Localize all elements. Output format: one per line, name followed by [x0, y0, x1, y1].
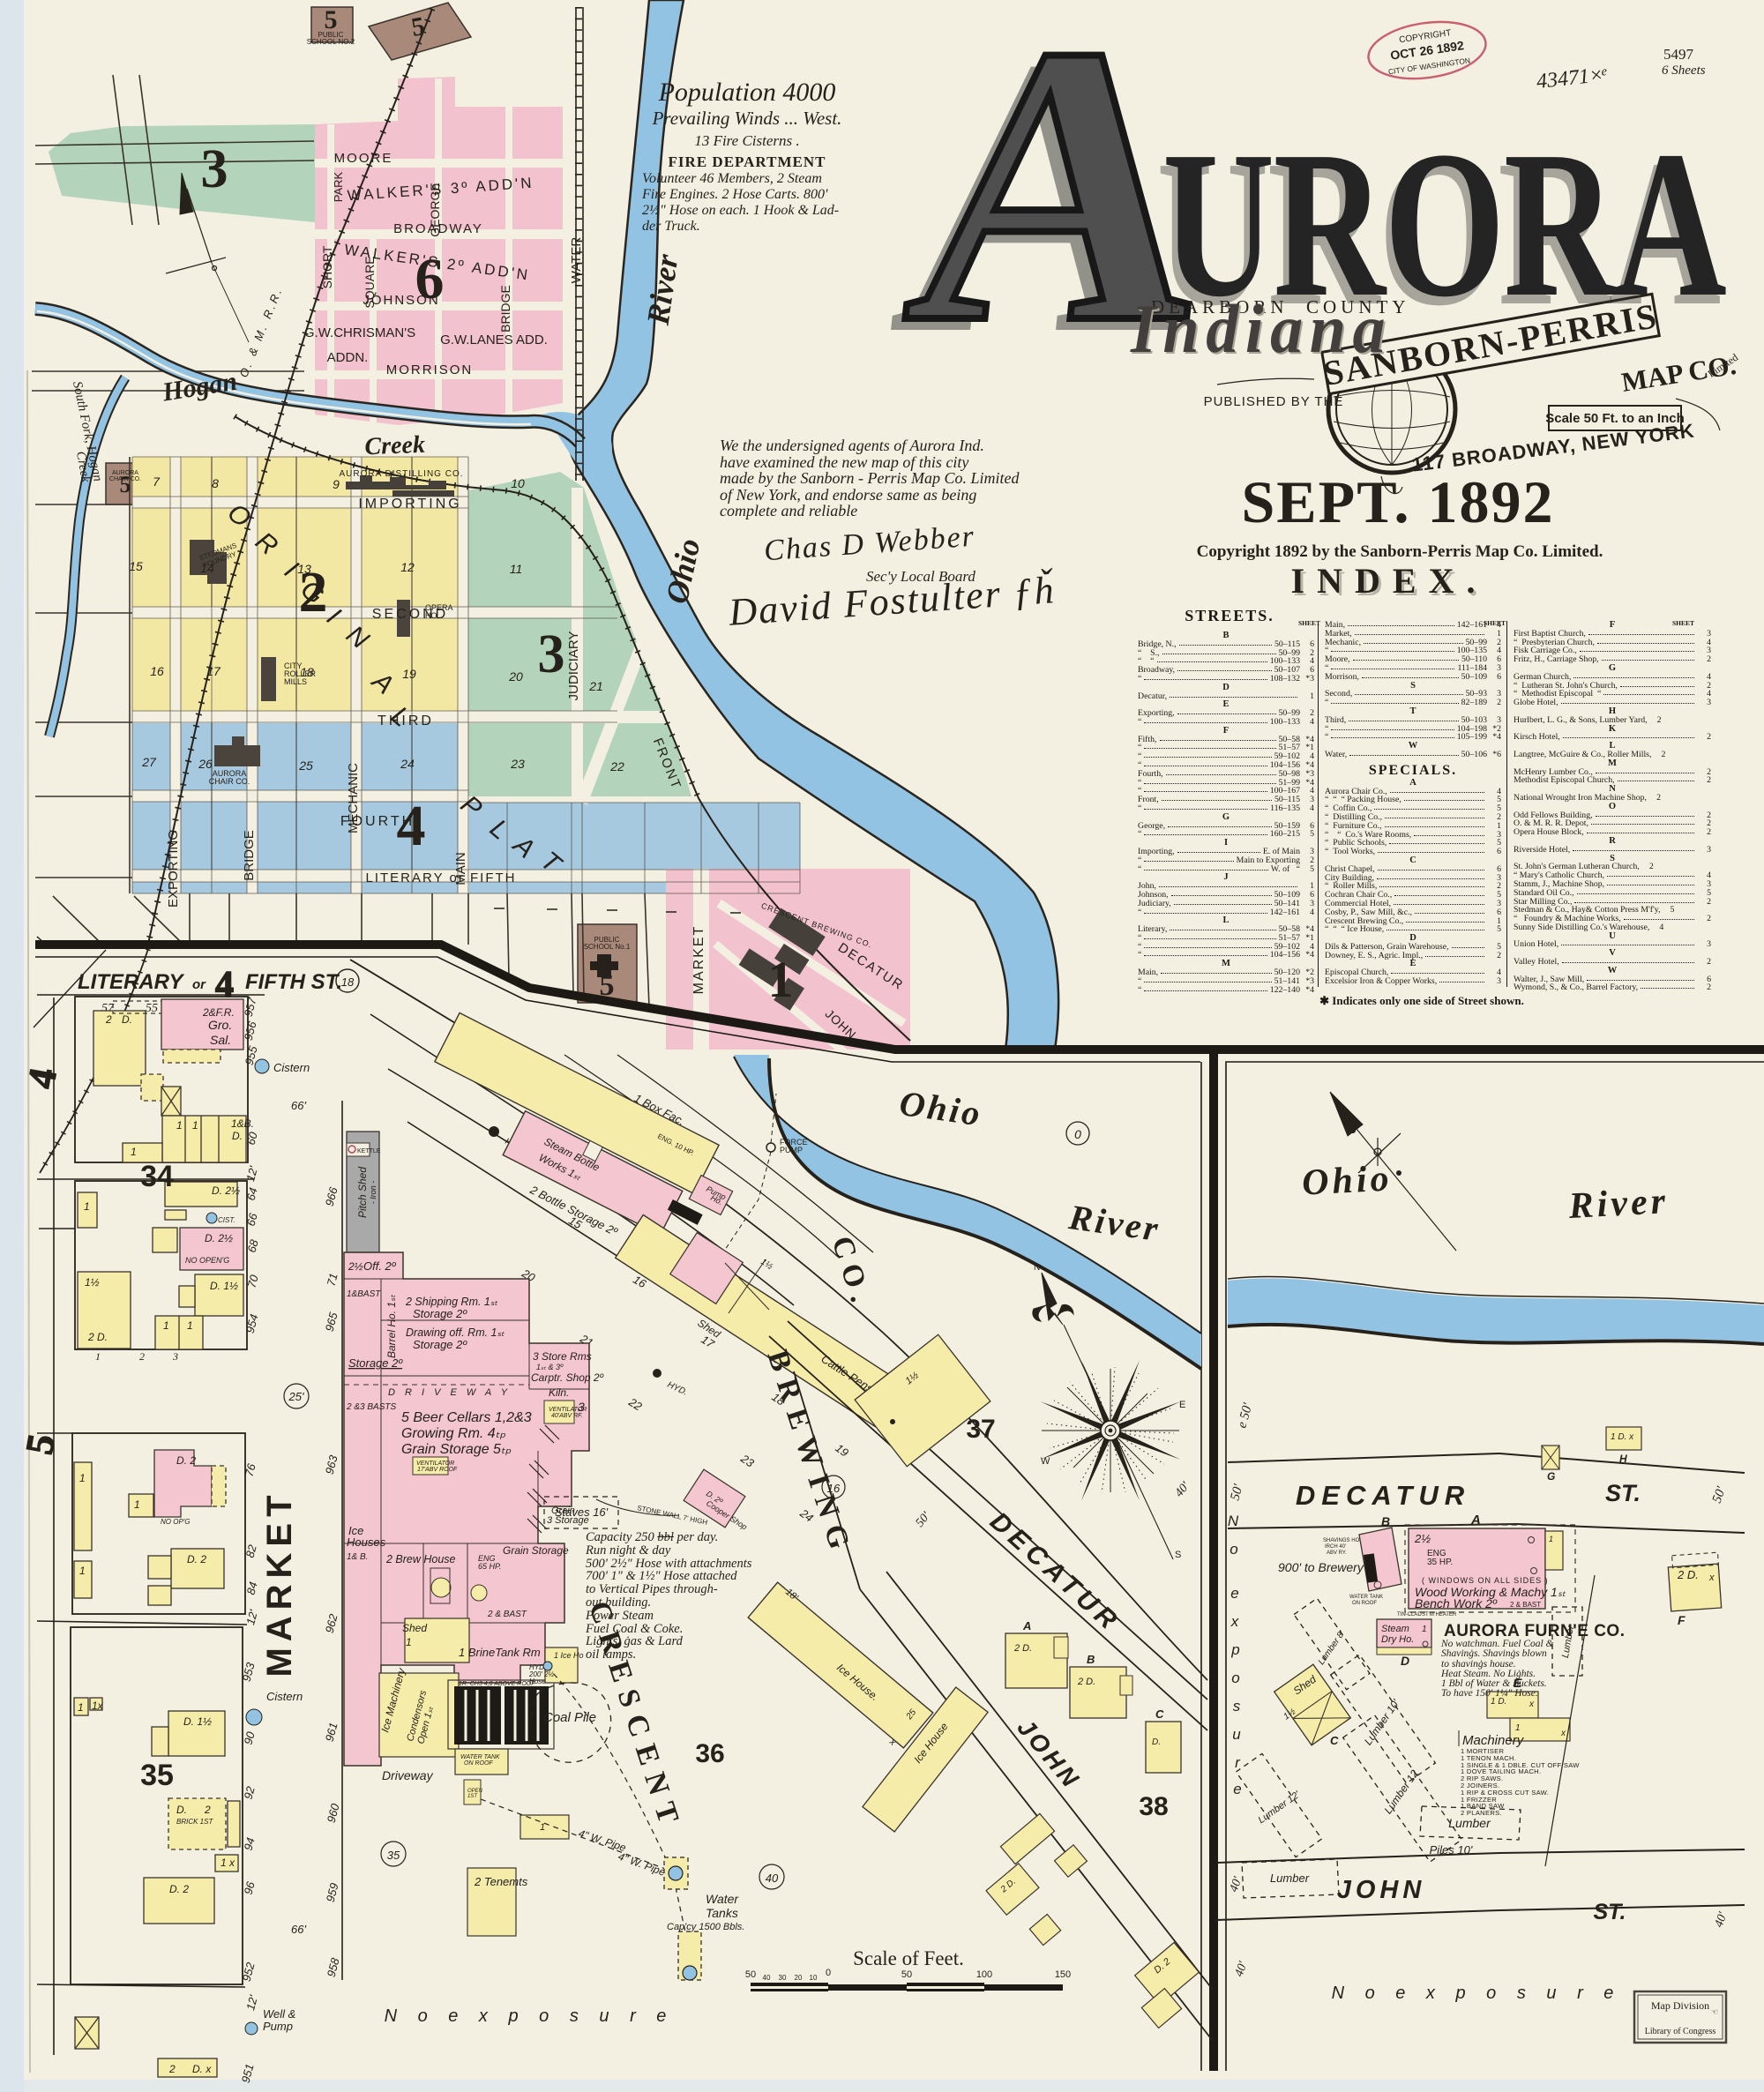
- svg-text:Houses: Houses: [347, 1535, 386, 1549]
- svg-text:150: 150: [1055, 1969, 1071, 1980]
- svg-text:Pitch Shed: Pitch Shed: [356, 1167, 369, 1218]
- svg-text:NO OPEN'G: NO OPEN'G: [185, 1256, 229, 1265]
- svg-text:or: or: [192, 977, 206, 992]
- svg-text:0: 0: [1074, 1127, 1081, 1141]
- svg-text:66': 66': [291, 1099, 306, 1112]
- svg-text:River: River: [1567, 1181, 1671, 1227]
- svg-text:TIN-CLAD: TIN-CLAD: [1397, 1612, 1422, 1618]
- svg-text:KETTLE: KETTLE: [357, 1148, 381, 1154]
- svg-text:2: 2: [204, 1804, 211, 1816]
- svg-text:D. 1½: D. 1½: [183, 1715, 212, 1728]
- svg-text:Gro.: Gro.: [208, 1018, 232, 1032]
- svg-text:SQUARE: SQUARE: [363, 256, 377, 308]
- svg-text:50: 50: [901, 1969, 912, 1980]
- svg-text:ST'M HEATER: ST'M HEATER: [1422, 1612, 1457, 1618]
- svg-text:Library of Congress: Library of Congress: [1645, 2027, 1716, 2036]
- svg-text:15: 15: [129, 559, 143, 573]
- svg-text:16: 16: [150, 664, 164, 678]
- svg-text:1: 1: [406, 1636, 412, 1648]
- svg-text:VENTILATOR: VENTILATOR: [549, 1407, 587, 1413]
- svg-text:1: 1: [1422, 1625, 1427, 1634]
- svg-text:G.W.CHRISMAN'S: G.W.CHRISMAN'S: [304, 325, 415, 340]
- svg-text:x: x: [1230, 1613, 1239, 1630]
- svg-text:35: 35: [387, 1849, 400, 1862]
- svg-text:GEORGE: GEORGE: [428, 183, 442, 236]
- svg-text:H: H: [1619, 1453, 1627, 1465]
- svg-text:CHAIR CO.: CHAIR CO.: [209, 777, 250, 786]
- svg-text:19: 19: [402, 667, 416, 681]
- svg-text:A: A: [1470, 1513, 1481, 1528]
- svg-text:MOORE: MOORE: [334, 151, 393, 166]
- svg-text:Map Division: Map Division: [1651, 1999, 1709, 2012]
- svg-text:o: o: [1231, 1670, 1239, 1686]
- svg-text:18: 18: [341, 975, 355, 989]
- svg-text:MECHANIC: MECHANIC: [346, 763, 361, 833]
- svg-text:D. 2: D. 2: [176, 1454, 196, 1467]
- svg-text:34: 34: [140, 1160, 174, 1193]
- svg-text:2 D.: 2 D.: [87, 1331, 108, 1343]
- svg-text:8: 8: [212, 476, 219, 490]
- svg-text:1: 1: [84, 1200, 90, 1213]
- svg-text:1R. CH3 4,8 ABOVE ROOF: 1R. CH3 4,8 ABOVE ROOF: [459, 1681, 535, 1687]
- svg-text:2 D.: 2 D.: [1013, 1643, 1032, 1654]
- svg-text:27: 27: [141, 755, 157, 769]
- svg-text:1: 1: [79, 1472, 86, 1484]
- svg-text:5 Beer Cellars 1,2&3: 5 Beer Cellars 1,2&3: [401, 1410, 532, 1425]
- svg-text:IMPORTING: IMPORTING: [358, 497, 461, 512]
- svg-text:2 D.: 2 D.: [1677, 1568, 1699, 1581]
- svg-text:3: 3: [538, 624, 565, 684]
- svg-text:Ohio: Ohio: [1301, 1158, 1394, 1203]
- svg-text:37: 37: [966, 1415, 995, 1444]
- svg-text:35: 35: [140, 1759, 174, 1792]
- svg-text:VENTILATOR: VENTILATOR: [416, 1461, 454, 1467]
- svg-text:40: 40: [763, 1974, 771, 1982]
- svg-text:9: 9: [333, 477, 340, 491]
- svg-text:e: e: [1233, 1781, 1241, 1797]
- svg-text:25: 25: [298, 758, 313, 773]
- svg-text:AURORA DISTILLING CO.: AURORA DISTILLING CO.: [339, 469, 463, 479]
- svg-text:ST.: ST.: [1605, 1480, 1641, 1506]
- svg-text:Dry Ho.: Dry Ho.: [1381, 1634, 1414, 1645]
- svg-text:40: 40: [766, 1872, 779, 1885]
- svg-text:D.: D.: [122, 1013, 132, 1026]
- svg-text:1ST: 1ST: [467, 1794, 478, 1799]
- svg-text:SEPT. 1892: SEPT. 1892: [1241, 468, 1554, 535]
- svg-text:1: 1: [78, 1701, 84, 1714]
- svg-text:BRIDGE: BRIDGE: [498, 285, 512, 332]
- svg-text:W: W: [1041, 1456, 1050, 1467]
- svg-text:900' to Brewery: 900' to Brewery: [1278, 1560, 1364, 1574]
- svg-text:MORRISON: MORRISON: [386, 362, 474, 377]
- svg-text:INDEX.: INDEX.: [1291, 561, 1488, 601]
- svg-text:Cap'cy 1500 Bbls.: Cap'cy 1500 Bbls.: [667, 1922, 744, 1932]
- svg-text:S: S: [1175, 1550, 1181, 1560]
- svg-text:F: F: [1678, 1613, 1686, 1627]
- svg-text:17'ABV ROOF: 17'ABV ROOF: [417, 1467, 458, 1473]
- svg-text:1: 1: [131, 1146, 137, 1158]
- svg-text:Grain Storage: Grain Storage: [503, 1544, 569, 1557]
- svg-text:Water: Water: [706, 1892, 739, 1906]
- svg-text:MARKET: MARKET: [260, 1489, 299, 1677]
- svg-text:EXPORTING: EXPORTING: [166, 830, 181, 908]
- svg-text:10: 10: [511, 476, 525, 490]
- svg-text:PUMP: PUMP: [780, 1146, 803, 1154]
- svg-text:D.: D.: [176, 1804, 187, 1816]
- svg-text:JOHN: JOHN: [1337, 1876, 1426, 1904]
- svg-text:Machinery: Machinery: [1462, 1733, 1525, 1748]
- svg-text:38: 38: [1139, 1792, 1168, 1821]
- svg-text:MILLS: MILLS: [284, 677, 307, 686]
- svg-text:SECOND: SECOND: [372, 607, 448, 622]
- svg-text:A: A: [1022, 1619, 1031, 1633]
- svg-text:3: 3: [201, 139, 228, 199]
- svg-text:o: o: [1230, 1541, 1237, 1558]
- svg-text:2: 2: [105, 1013, 112, 1026]
- svg-text:p: p: [1230, 1641, 1239, 1658]
- svg-text:IRCH 40': IRCH 40': [1325, 1544, 1346, 1550]
- svg-text:D. 2: D. 2: [187, 1553, 206, 1565]
- svg-text:2 &3 BASTS: 2 &3 BASTS: [346, 1402, 396, 1412]
- svg-text:24: 24: [400, 757, 415, 771]
- svg-text:D. 1½: D. 1½: [210, 1280, 238, 1292]
- svg-text:0: 0: [826, 1968, 831, 1978]
- svg-text:BRICK 1ST: BRICK 1ST: [176, 1818, 213, 1826]
- svg-text:PARK: PARK: [332, 171, 345, 202]
- svg-text:Creek: Creek: [364, 431, 425, 460]
- svg-text:D R I V E W A Y: D R I V E W A Y: [388, 1387, 511, 1398]
- svg-text:NO OP'G: NO OP'G: [161, 1518, 191, 1526]
- svg-text:CHAIR CO.: CHAIR CO.: [109, 476, 141, 482]
- svg-text:2 & BAST: 2 & BAST: [1510, 1601, 1541, 1609]
- svg-text:1ₛₜ & 3º: 1ₛₜ & 3º: [536, 1363, 564, 1371]
- svg-text:22: 22: [609, 759, 624, 773]
- svg-text:20: 20: [508, 669, 523, 684]
- svg-text:N: N: [1034, 1263, 1040, 1273]
- svg-text:2 Tenemts: 2 Tenemts: [474, 1875, 528, 1888]
- svg-text:Storage 2º: Storage 2º: [413, 1307, 467, 1320]
- svg-text:AURORA: AURORA: [112, 470, 138, 476]
- svg-text:Copyright 1892 by the Sanborn-: Copyright 1892 by the Sanborn-Perris Map…: [1197, 542, 1603, 561]
- svg-text:D. 2½: D. 2½: [205, 1232, 233, 1244]
- svg-text:x: x: [1560, 1729, 1566, 1738]
- svg-text:ADDN.: ADDN.: [327, 350, 369, 365]
- svg-text:D. 2½: D. 2½: [212, 1184, 240, 1197]
- svg-text:WATER TANK: WATER TANK: [1349, 1595, 1383, 1600]
- svg-text:ON ROOF: ON ROOF: [464, 1760, 493, 1767]
- svg-text:1: 1: [1515, 1723, 1521, 1733]
- svg-text:12: 12: [400, 560, 415, 574]
- svg-text:Cistern: Cistern: [266, 1690, 303, 1703]
- svg-text:1 x: 1 x: [220, 1857, 235, 1869]
- svg-text:3: 3: [172, 1350, 178, 1363]
- svg-text:Staves 16': Staves 16': [555, 1505, 609, 1519]
- svg-text:Pump: Pump: [263, 2020, 293, 2033]
- svg-text:N o e x p o s u r e: N o e x p o s u r e: [385, 2006, 675, 2026]
- svg-text:1: 1: [187, 1319, 193, 1332]
- svg-text:G.W.LANES ADD.: G.W.LANES ADD.: [440, 332, 548, 347]
- svg-text:Lumber: Lumber: [1448, 1816, 1491, 1830]
- svg-text:1: 1: [163, 1319, 169, 1332]
- svg-text:WATER TANK: WATER TANK: [460, 1754, 500, 1760]
- svg-text:2 Brew House: 2 Brew House: [385, 1553, 456, 1565]
- svg-text:1 D. x: 1 D. x: [1611, 1432, 1634, 1442]
- svg-text:36: 36: [695, 1739, 724, 1768]
- svg-text:D. 2: D. 2: [169, 1883, 189, 1895]
- svg-text:FIFTH ST.: FIFTH ST.: [245, 970, 342, 994]
- svg-text:u: u: [1232, 1726, 1241, 1743]
- svg-text:1&B.: 1&B.: [231, 1117, 254, 1130]
- svg-text:AURORA FURN'E CO.: AURORA FURN'E CO.: [1444, 1622, 1625, 1640]
- svg-text:Storage 2º: Storage 2º: [348, 1356, 403, 1370]
- svg-text:CIST.: CIST.: [218, 1216, 235, 1224]
- svg-text:Storage 2º: Storage 2º: [413, 1338, 467, 1351]
- svg-text:D.: D.: [1152, 1737, 1161, 1747]
- svg-text:D.: D.: [232, 1130, 243, 1142]
- svg-text:1 Ice Ho: 1 Ice Ho: [554, 1651, 584, 1660]
- svg-text:- Iron -: - Iron -: [369, 1181, 377, 1205]
- svg-text:2 & BAST: 2 & BAST: [487, 1610, 527, 1619]
- svg-text:1: 1: [134, 1498, 140, 1511]
- svg-text:7: 7: [153, 474, 161, 489]
- svg-text:Drawing off. Rm. 1ₛₜ: Drawing off. Rm. 1ₛₜ: [406, 1326, 505, 1339]
- svg-text:2&F.R.: 2&F.R.: [202, 1006, 235, 1019]
- svg-text:10: 10: [810, 1974, 818, 1982]
- svg-text:21: 21: [588, 679, 603, 693]
- svg-text:Scale of Feet.: Scale of Feet.: [853, 1947, 964, 1969]
- svg-text:JUDICIARY: JUDICIARY: [566, 631, 581, 701]
- svg-text:Tanks: Tanks: [706, 1906, 738, 1920]
- svg-text:66': 66': [291, 1923, 306, 1936]
- svg-text:ON ROOF: ON ROOF: [1352, 1601, 1377, 1606]
- svg-text:2: 2: [168, 2063, 176, 2075]
- svg-text:s: s: [1233, 1698, 1241, 1715]
- svg-text:B: B: [1087, 1653, 1095, 1666]
- svg-text:Bench Work 2º: Bench Work 2º: [1415, 1596, 1498, 1610]
- svg-text:☜: ☜: [1711, 2007, 1718, 2016]
- svg-text:Lumber: Lumber: [1270, 1872, 1310, 1885]
- svg-text:x: x: [1708, 1573, 1715, 1583]
- svg-text:Barrel Ho. 1ₛₜ: Barrel Ho. 1ₛₜ: [385, 1294, 398, 1358]
- svg-text:ABV RY.: ABV RY.: [1327, 1550, 1347, 1556]
- svg-text:D: D: [1401, 1654, 1409, 1668]
- svg-text:1: 1: [192, 1119, 198, 1132]
- svg-text:1: 1: [176, 1119, 183, 1132]
- svg-text:LITERARY or FIFTH: LITERARY or FIFTH: [366, 870, 517, 885]
- svg-text:50: 50: [745, 1969, 756, 1980]
- svg-text:23: 23: [510, 757, 525, 771]
- svg-text:e: e: [1230, 1585, 1238, 1602]
- svg-text:40'ABV RF.: 40'ABV RF.: [551, 1413, 583, 1419]
- svg-text:1x: 1x: [92, 1700, 104, 1712]
- svg-text:Cistern: Cistern: [273, 1061, 310, 1074]
- svg-text:17: 17: [206, 664, 221, 678]
- svg-text:2: 2: [139, 1350, 145, 1363]
- svg-text:LITERARY: LITERARY: [78, 970, 185, 994]
- svg-text:MAIN: MAIN: [453, 852, 468, 885]
- svg-text:WATER: WATER: [569, 237, 584, 284]
- svg-text:2½: 2½: [348, 1260, 363, 1273]
- svg-text:Grain Storage 5ₜₚ: Grain Storage 5ₜₚ: [401, 1442, 512, 1457]
- svg-text:100: 100: [976, 1969, 992, 1980]
- svg-text:E: E: [1179, 1400, 1185, 1410]
- svg-text:B: B: [1381, 1514, 1390, 1528]
- svg-text:x: x: [1529, 1700, 1535, 1709]
- svg-text:35 HP.: 35 HP.: [1427, 1558, 1453, 1567]
- svg-text:26: 26: [198, 757, 213, 771]
- svg-text:D. x: D. x: [192, 2063, 212, 2075]
- svg-text:Steam: Steam: [1381, 1624, 1409, 1634]
- svg-text:1: 1: [768, 951, 794, 1008]
- svg-text:MARKET: MARKET: [691, 925, 706, 995]
- svg-text:Growing Rm. 4ₜₚ: Growing Rm. 4ₜₚ: [401, 1426, 505, 1441]
- svg-text:Off. 2º: Off. 2º: [363, 1259, 397, 1273]
- svg-text:ST.: ST.: [1593, 1900, 1626, 1924]
- svg-text:25': 25': [288, 1390, 304, 1403]
- svg-text:20: 20: [795, 1974, 803, 1982]
- svg-text:2 Shipping Rm. 1ₛₜ: 2 Shipping Rm. 1ₛₜ: [405, 1296, 498, 1308]
- svg-text:2 D.: 2 D.: [1077, 1677, 1095, 1687]
- svg-text:Carptr. Shop 2º: Carptr. Shop 2º: [531, 1371, 604, 1384]
- svg-text:1&BAST: 1&BAST: [347, 1289, 381, 1299]
- svg-text:11: 11: [510, 562, 523, 576]
- svg-text:Kiln.: Kiln.: [549, 1386, 569, 1399]
- svg-text:1 BrineTank Rm: 1 BrineTank Rm: [459, 1646, 541, 1659]
- svg-text:1: 1: [79, 1565, 86, 1577]
- svg-text:SHORT: SHORT: [320, 245, 334, 288]
- svg-text:SHAVINGS HO.: SHAVINGS HO.: [1323, 1538, 1361, 1543]
- svg-text:1: 1: [1549, 1535, 1553, 1543]
- svg-text:1& B.: 1& B.: [347, 1552, 368, 1562]
- svg-text:( WINDOWS ON ALL SIDES ): ( WINDOWS ON ALL SIDES ): [1422, 1576, 1549, 1585]
- svg-text:1: 1: [95, 1350, 101, 1363]
- svg-text:N: N: [1228, 1513, 1239, 1529]
- svg-text:1½: 1½: [85, 1276, 100, 1289]
- svg-text:3 Store Rms: 3 Store Rms: [533, 1350, 592, 1363]
- svg-text:Coal Pile: Coal Pile: [543, 1710, 596, 1725]
- svg-text:Driveway: Driveway: [382, 1768, 434, 1782]
- svg-text:Shed: Shed: [402, 1622, 427, 1634]
- svg-text:PUBLISHED BY THE: PUBLISHED BY THE: [1204, 394, 1344, 409]
- svg-text:SCHOOL NO.2: SCHOOL NO.2: [307, 38, 355, 46]
- svg-text:30: 30: [779, 1974, 787, 1982]
- svg-text:Sal.: Sal.: [210, 1033, 231, 1047]
- svg-text:DECATUR: DECATUR: [1296, 1480, 1470, 1511]
- svg-text:Well &: Well &: [263, 2007, 295, 2021]
- svg-text:65 HP.: 65 HP.: [478, 1562, 501, 1571]
- svg-text:BRIDGE: BRIDGE: [242, 830, 257, 881]
- svg-text:2½: 2½: [1414, 1532, 1431, 1545]
- svg-text:N o e x p o s u r e: N o e x p o s u r e: [1332, 1984, 1622, 2003]
- svg-text:SCHOOL No.1: SCHOOL No.1: [584, 943, 631, 951]
- svg-text:G: G: [1547, 1470, 1555, 1483]
- svg-text:C: C: [1155, 1707, 1164, 1721]
- svg-text:C: C: [1330, 1734, 1339, 1747]
